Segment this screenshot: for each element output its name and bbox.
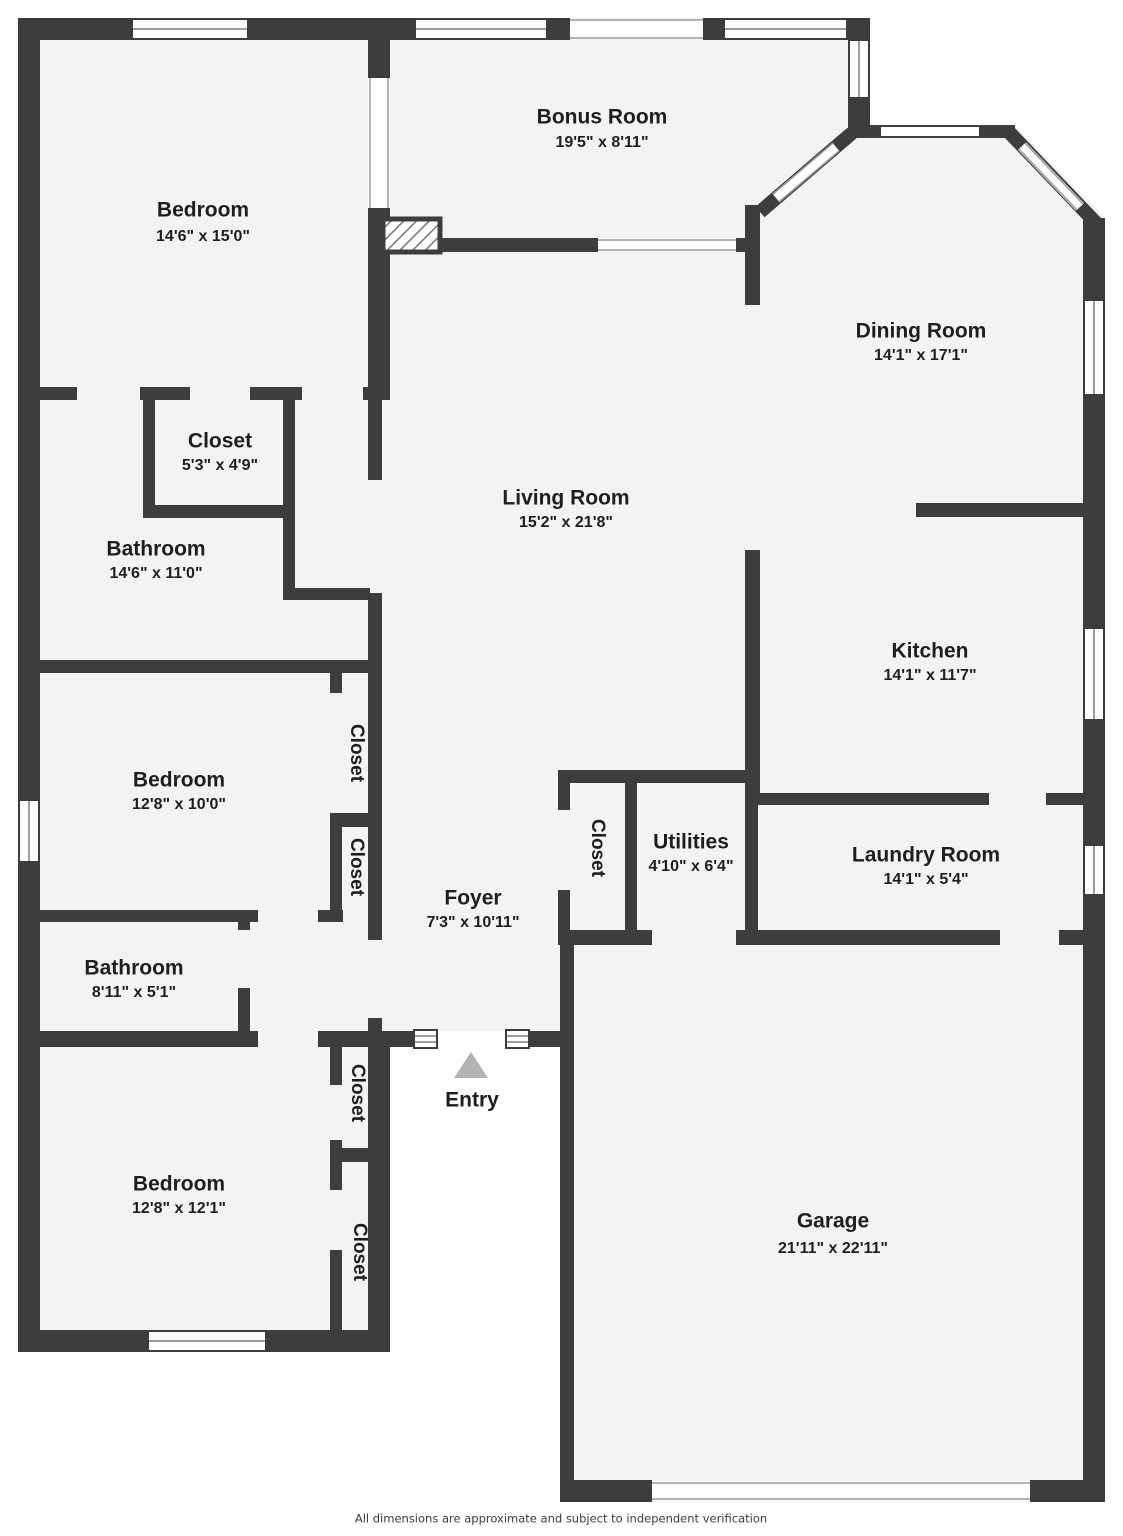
svg-text:19'5" x 8'11": 19'5" x 8'11" [555,134,648,151]
svg-text:12'8" x 12'1": 12'8" x 12'1" [132,1200,226,1217]
svg-text:14'1" x 17'1": 14'1" x 17'1" [874,347,968,364]
opening [570,19,703,39]
entry-arrow-icon [454,1052,488,1078]
room-label-closet-main: Closet 5'3" x 4'9" [182,430,258,475]
floor-plan: Bedroom 14'6" x 15'0" Bonus Room 19'5" x… [0,0,1123,1536]
room-label-bathroom-2: Bathroom 8'11" x 5'1" [84,957,183,1002]
window [1084,628,1104,720]
svg-text:Bedroom: Bedroom [133,769,225,792]
closet-label: Closet [347,1064,368,1123]
window [1084,845,1104,895]
svg-text:Bathroom: Bathroom [84,957,183,980]
floor-plan-page: Bedroom 14'6" x 15'0" Bonus Room 19'5" x… [0,0,1123,1536]
window [415,19,547,39]
window [132,19,248,39]
closet-label: Closet [349,1223,370,1282]
svg-text:Garage: Garage [797,1210,869,1233]
window [724,19,847,39]
svg-text:12'8" x 10'0": 12'8" x 10'0" [132,796,226,813]
closet-label: Closet [346,724,367,783]
room-label-bonus-room: Bonus Room 19'5" x 8'11" [537,106,668,152]
room-label-kitchen: Kitchen 14'1" x 11'7" [883,640,976,685]
footer-disclaimer: All dimensions are approximate and subje… [355,1512,767,1526]
closet-label: Closet [587,819,608,878]
room-label-dining-room: Dining Room 14'1" x 17'1" [856,320,987,365]
closet-label: Closet [346,838,367,897]
svg-text:5'3" x 4'9": 5'3" x 4'9" [182,457,258,474]
room-label-bedroom-3: Bedroom 12'8" x 12'1" [132,1173,226,1218]
window [148,1331,266,1351]
svg-text:14'6" x 11'0": 14'6" x 11'0" [109,565,202,582]
svg-text:Laundry Room: Laundry Room [852,844,1000,867]
svg-text:4'10" x 6'4": 4'10" x 6'4" [648,858,733,875]
svg-text:Bonus Room: Bonus Room [537,106,668,129]
window [1084,300,1104,395]
opening [598,238,736,252]
svg-text:Kitchen: Kitchen [891,640,968,663]
svg-text:21'11" x 22'11": 21'11" x 22'11" [778,1240,888,1257]
svg-text:Utilities: Utilities [653,831,729,854]
room-label-utilities: Utilities 4'10" x 6'4" [648,831,733,876]
window [19,800,39,862]
garage-door-opening [652,1481,1030,1501]
entry-label: Entry [445,1089,499,1112]
svg-text:Living Room: Living Room [502,487,629,510]
window [849,40,869,98]
room-label-bathroom-1: Bathroom 14'6" x 11'0" [106,538,205,583]
svg-text:15'2" x 21'8": 15'2" x 21'8" [519,514,613,531]
entry-door [414,1030,529,1048]
svg-text:8'11" x 5'1": 8'11" x 5'1" [92,984,176,1001]
svg-text:14'6" x 15'0": 14'6" x 15'0" [156,228,250,245]
svg-text:Bedroom: Bedroom [133,1173,225,1196]
svg-text:Bathroom: Bathroom [106,538,205,561]
svg-text:Bedroom: Bedroom [157,199,249,222]
svg-text:7'3" x 10'11": 7'3" x 10'11" [426,914,519,931]
svg-text:14'1" x 5'4": 14'1" x 5'4" [883,871,968,888]
svg-text:Foyer: Foyer [444,887,501,910]
svg-text:Dining Room: Dining Room [856,320,987,343]
fireplace-hatch [383,219,440,252]
svg-text:Closet: Closet [188,430,252,453]
opening [368,78,390,208]
room-label-bedroom-2: Bedroom 12'8" x 10'0" [132,769,226,814]
room-label-living-room: Living Room 15'2" x 21'8" [502,487,629,532]
svg-text:14'1" x 11'7": 14'1" x 11'7" [883,667,976,684]
window [880,126,980,137]
